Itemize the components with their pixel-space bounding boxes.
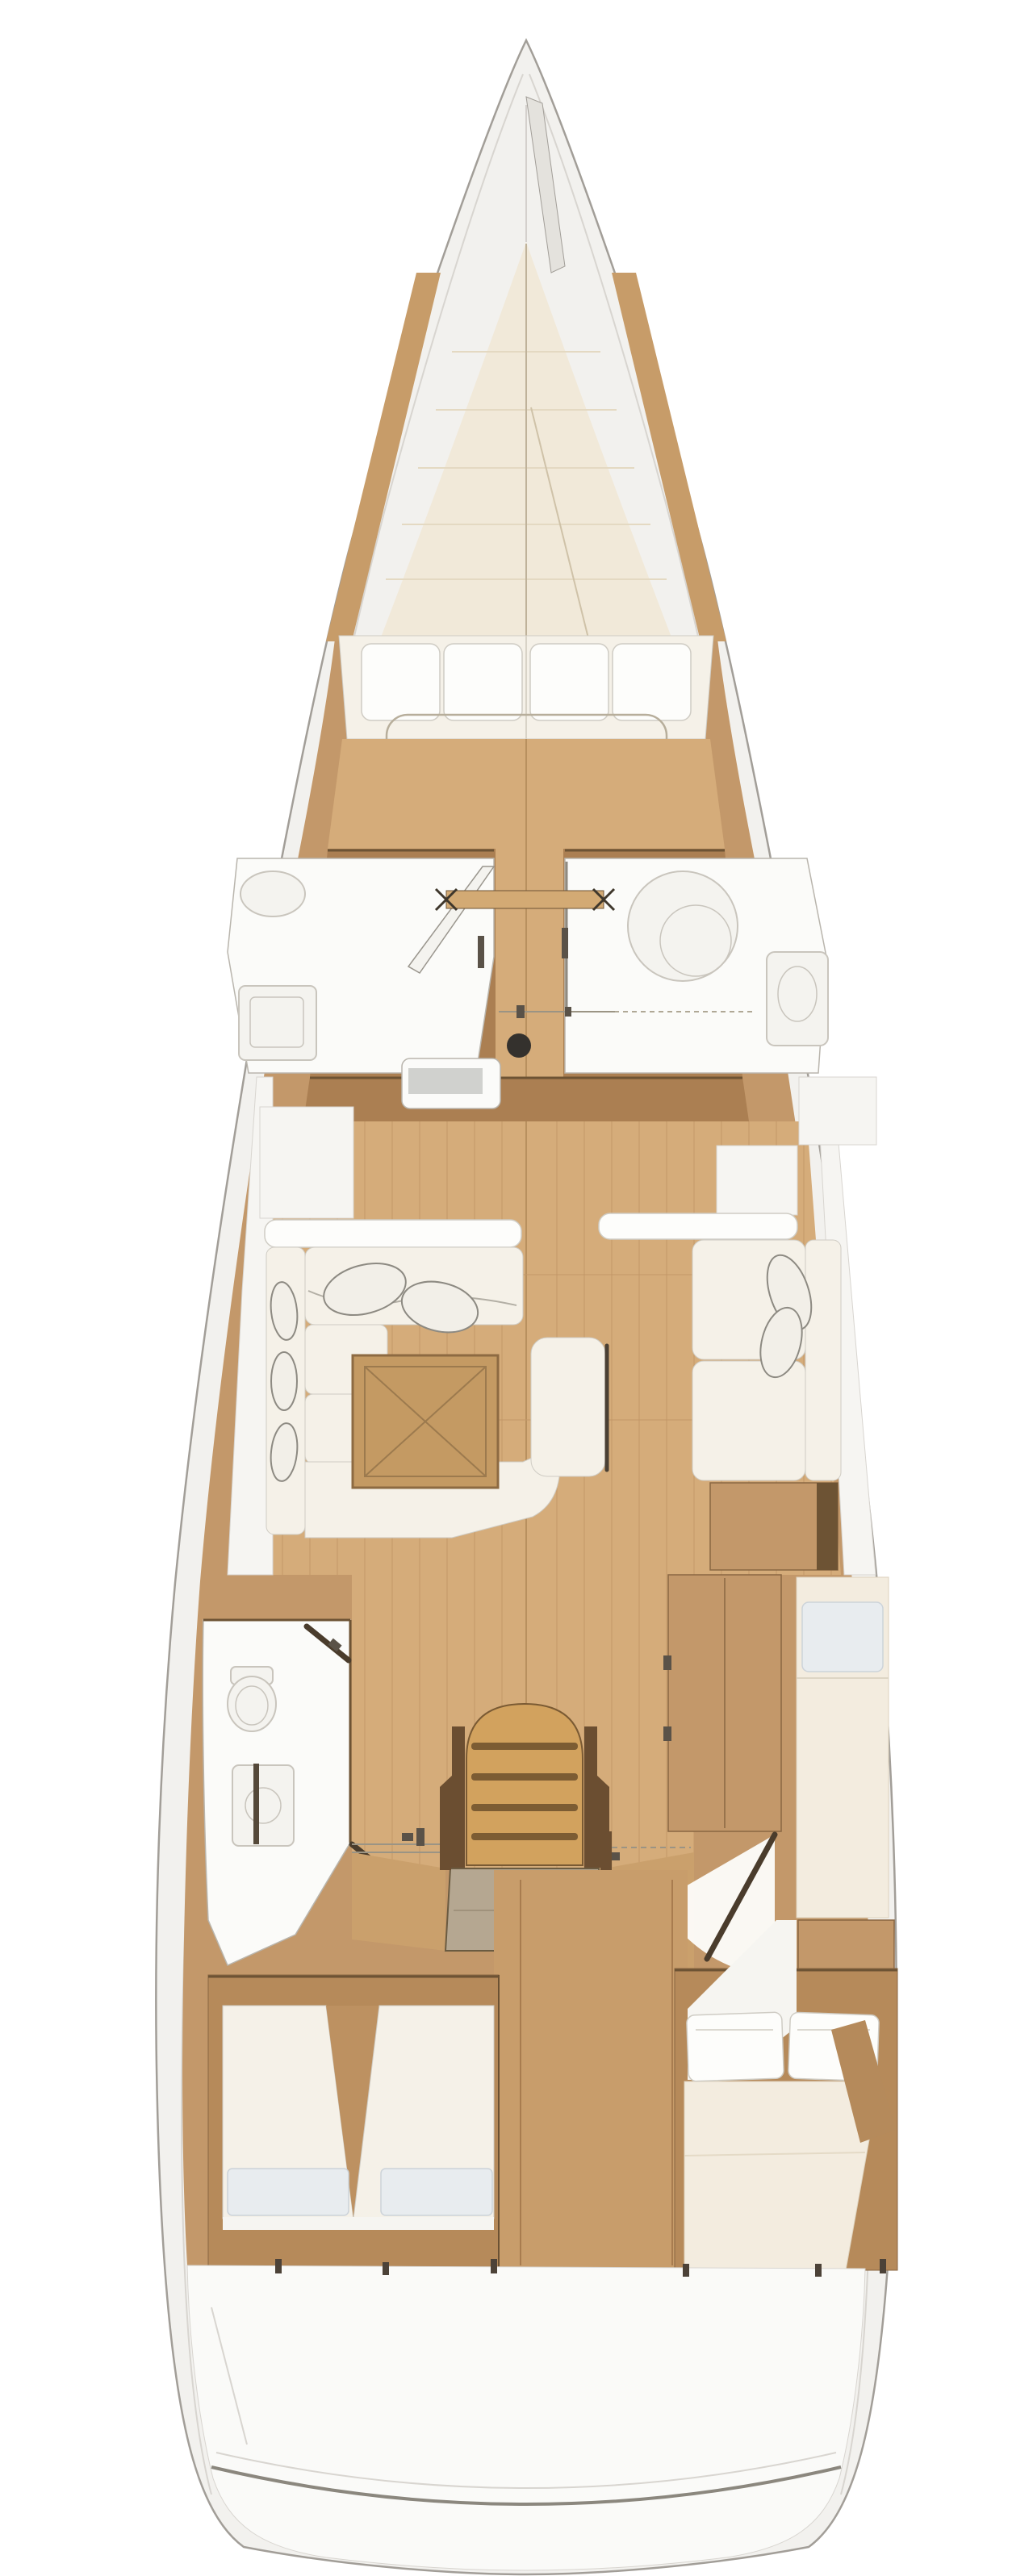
center-bench: Center bench seat bbox=[531, 1338, 607, 1476]
port-cabin-entry-floor bbox=[352, 1852, 445, 1951]
port-settee-armrest bbox=[265, 1220, 521, 1247]
port-aft-cabin: Port aft cabin twin berths bbox=[208, 1975, 499, 2269]
main-bulkhead bbox=[303, 1077, 749, 1121]
port-berth-foot-strip bbox=[223, 2217, 494, 2230]
port-head-door-hinge bbox=[478, 936, 484, 968]
port-berth-pillow-2 bbox=[381, 2169, 492, 2215]
starboard-head-door-hinge bbox=[562, 928, 568, 958]
stair-rail-port bbox=[452, 1726, 465, 1868]
starboard-sideboard bbox=[799, 1077, 876, 1145]
aft-sink-counter bbox=[232, 1765, 294, 1846]
port-berth-pillow-1 bbox=[228, 2169, 349, 2215]
yacht-floor-plan: Hull and deck Forepeak locker Owner cabi… bbox=[0, 0, 1033, 2576]
starboard-forward-cabinet bbox=[717, 1146, 797, 1215]
shower-screen-edge bbox=[253, 1764, 259, 1844]
stbd-seat-cushion-2 bbox=[692, 1361, 805, 1480]
wardrobe: Starboard wardrobe bbox=[663, 1575, 781, 1831]
bulkhead-shelf-inset bbox=[408, 1068, 483, 1094]
lumbar-pillow-2 bbox=[271, 1352, 297, 1410]
stair-rail-starboard bbox=[584, 1726, 597, 1868]
starboard-berth: Starboard aft single berth bbox=[797, 1577, 889, 1918]
mast-icon bbox=[507, 1033, 531, 1058]
stern: Stern deck and transom bbox=[187, 2259, 886, 2570]
starboard-aft-cabin: Starboard aft cabin double berth bbox=[675, 1920, 897, 2270]
bench-cushion bbox=[531, 1338, 605, 1476]
cabin-doorway bbox=[436, 889, 614, 910]
aft-toilet-bowl bbox=[228, 1676, 276, 1731]
double-bed-pillow-1 bbox=[687, 2012, 784, 2081]
wardrobe-hinge-2 bbox=[663, 1726, 671, 1741]
stern-deck bbox=[187, 2265, 865, 2570]
stbd-settee-backrest bbox=[805, 1240, 841, 1480]
companionway-steps bbox=[466, 1704, 583, 1865]
mast-step: Mast step bbox=[507, 1033, 531, 1058]
port-forward-cabinet bbox=[260, 1107, 353, 1218]
center-column bbox=[494, 1870, 688, 2269]
folded-doors-bar bbox=[446, 891, 604, 908]
wardrobe-hinge-1 bbox=[663, 1655, 671, 1670]
sink-basin bbox=[240, 871, 305, 916]
double-bed-mattress bbox=[684, 2081, 880, 2270]
stbd-end-cabinet-trim bbox=[817, 1483, 838, 1570]
salon-table: Folding salon table bbox=[353, 1355, 498, 1488]
forward-cabin: Owner cabin with V-berth bbox=[328, 636, 725, 849]
forward-heads: Port forward shower room Starboard forwa… bbox=[228, 849, 828, 1121]
single-berth-pillow bbox=[802, 1602, 883, 1672]
starboard-settee-armrest bbox=[599, 1213, 797, 1239]
